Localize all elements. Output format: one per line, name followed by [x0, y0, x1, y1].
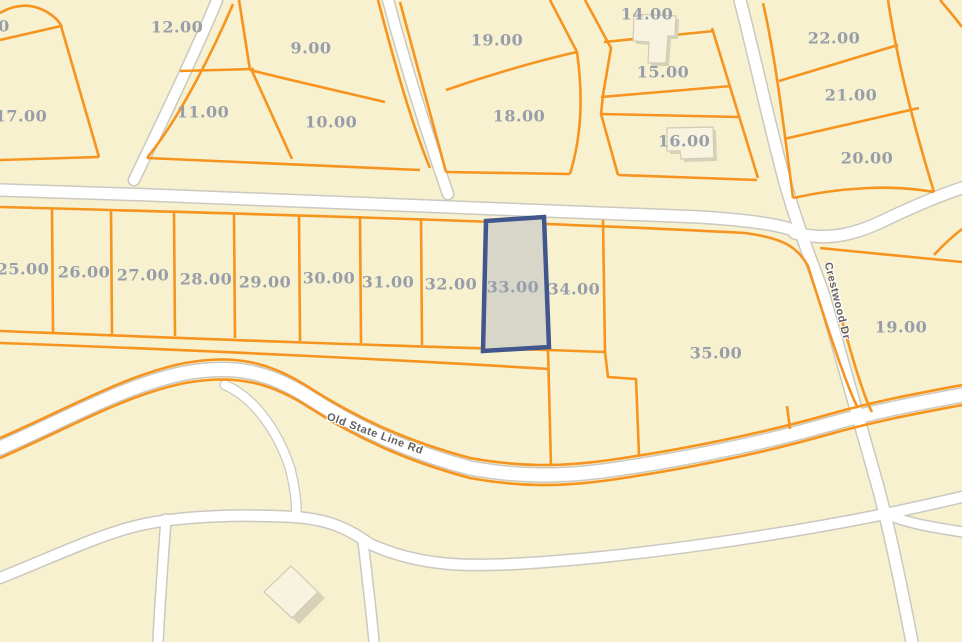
parcel-map[interactable]: 012.009.0017.0011.0010.0019.0018.0014.00… — [0, 0, 962, 642]
parcel-boundary — [605, 352, 639, 455]
selected-parcel[interactable] — [483, 217, 549, 351]
parcel-boundary — [0, 359, 962, 465]
parcel-boundary — [585, 0, 618, 175]
road — [0, 497, 962, 578]
road — [388, 0, 448, 194]
building-footprint — [667, 127, 714, 159]
parcel-boundary — [111, 210, 112, 334]
parcel-boundary — [618, 175, 757, 180]
parcel-boundary — [570, 52, 581, 174]
parcel-boundary — [234, 213, 235, 338]
parcel-boundary — [779, 45, 898, 81]
parcel-boundary — [147, 158, 420, 170]
parcel-boundary — [252, 71, 292, 159]
road — [363, 542, 374, 642]
parcel-boundary — [52, 209, 53, 332]
parcel-boundary — [0, 207, 858, 408]
parcel-boundary — [548, 350, 605, 352]
parcel-boundary — [299, 215, 300, 341]
parcel-boundary — [603, 220, 605, 352]
parcel-boundary — [61, 26, 99, 157]
parcel-boundary — [446, 52, 577, 90]
parcel-boundary — [940, 0, 962, 27]
road — [886, 514, 962, 532]
parcel-boundary — [250, 70, 385, 102]
parcel-boundary — [601, 114, 739, 117]
parcel-boundary — [888, 0, 934, 192]
parcel-boundary — [174, 212, 175, 336]
map-canvas — [0, 0, 962, 642]
road-casings — [0, 0, 962, 642]
parcel-boundary — [239, 0, 250, 70]
parcel-boundary — [784, 108, 919, 139]
parcel-boundary — [548, 350, 551, 466]
parcel-boundary — [0, 26, 61, 40]
parcel-boundary — [0, 6, 62, 27]
parcel-boundary — [446, 172, 570, 174]
parcel-boundary — [601, 86, 731, 97]
parcel-boundary — [360, 216, 361, 343]
parcel-boundary — [820, 248, 962, 262]
parcel-boundary — [934, 229, 962, 255]
parcel-boundary — [550, 0, 577, 52]
parcel-boundary — [421, 218, 422, 345]
roads — [0, 0, 962, 642]
parcel-boundary — [0, 157, 99, 160]
road — [134, 0, 217, 180]
parcel-boundary — [793, 188, 934, 198]
